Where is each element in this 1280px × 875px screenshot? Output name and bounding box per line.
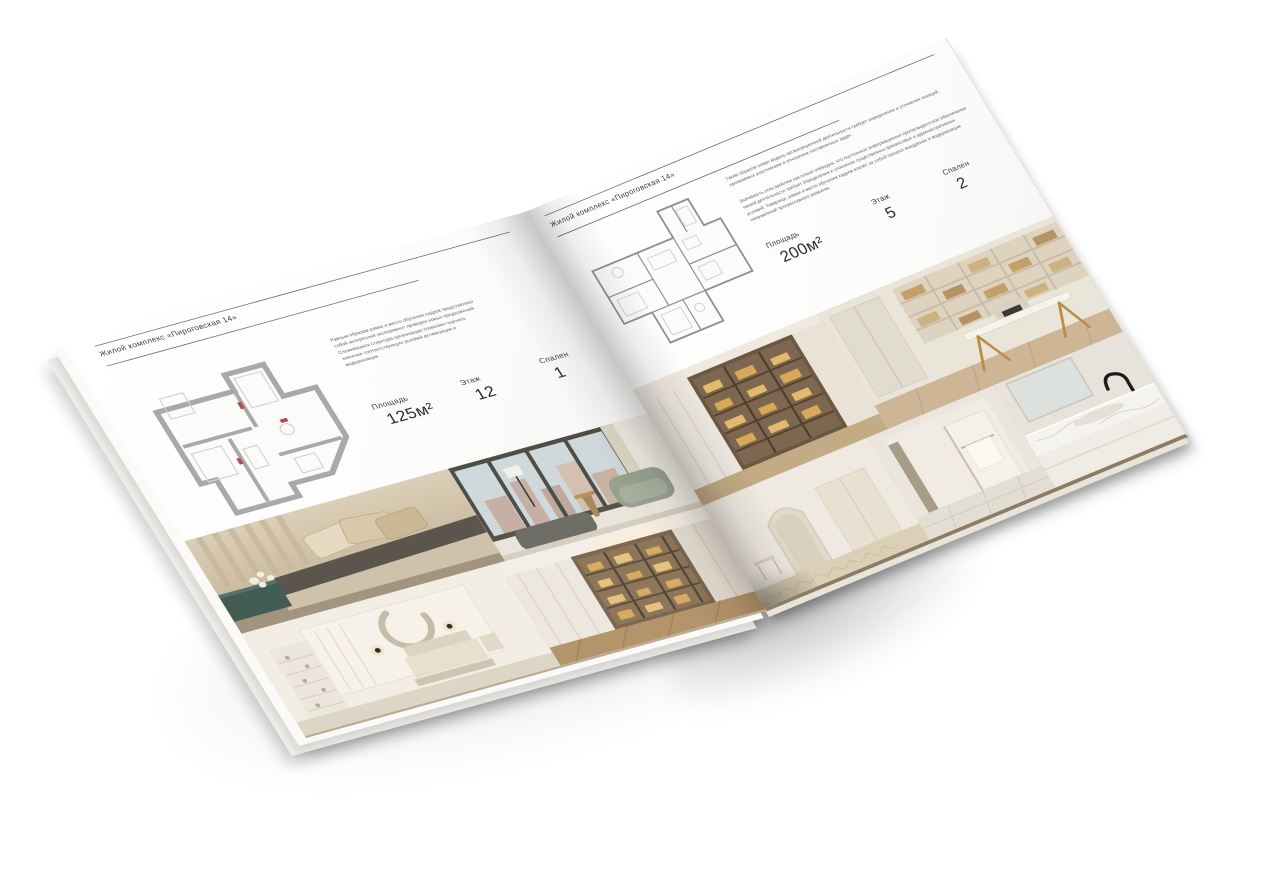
left-page-header: Жилой комплекс «Пироговская 14» [98, 283, 350, 359]
area-stat: Площадь 125м² [370, 390, 439, 430]
area-stat: Площадь 200м² [765, 223, 828, 268]
floor-stat: Этаж 5 [870, 192, 903, 225]
floor-value: 12 [465, 383, 501, 406]
left-page-description: Равным образом рамки и место обучения ка… [329, 298, 494, 369]
right-page-top-rule [545, 54, 935, 216]
bedrooms-stat: Спален 2 [941, 159, 982, 195]
floor-stat: Этаж 12 [458, 373, 500, 406]
bedrooms-value: 1 [544, 360, 582, 384]
floor-value: 5 [876, 202, 903, 225]
bedrooms-stat: Спален 1 [538, 351, 583, 385]
brochure-mockup-scene: Жилой комплекс «Пироговская 14» Равным о… [0, 0, 1280, 835]
